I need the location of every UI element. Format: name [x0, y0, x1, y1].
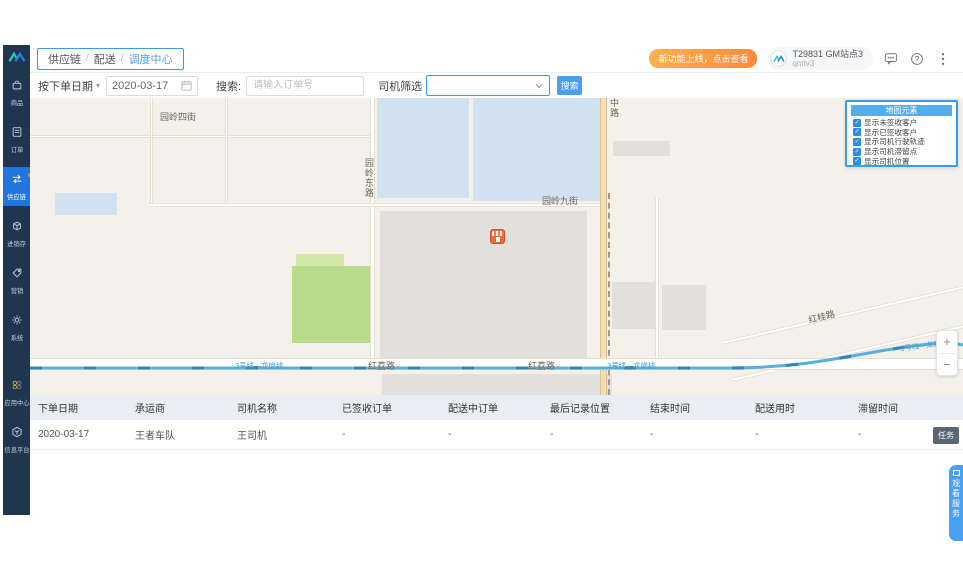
app-logo-icon	[8, 49, 26, 65]
map-zoom-control: + −	[936, 330, 958, 376]
cell-end-time: -	[642, 429, 747, 440]
cell-signed-orders: -	[334, 429, 440, 440]
street-label: 红桂路	[807, 307, 836, 326]
column-header: 最后记录位置	[542, 400, 642, 415]
service-ribbon[interactable]: 观看服务	[949, 465, 963, 541]
order-number-input[interactable]	[246, 76, 364, 96]
dispatch-center-page: 商品 订单 供应链 进销存 营销 系统 应用中心 信息平台	[0, 0, 963, 563]
street-label: 园岭四街	[160, 110, 196, 123]
street-label: 园岭东路	[363, 158, 376, 198]
store-marker-icon[interactable]	[490, 229, 505, 244]
column-header: 配送中订单	[440, 400, 542, 415]
service-ribbon-label: 观看服务	[951, 479, 962, 519]
search-label: 搜索:	[216, 78, 241, 94]
app-center-icon	[11, 378, 23, 396]
map-road	[370, 98, 375, 363]
sidebar-item-orders[interactable]: 订单	[3, 120, 30, 159]
cell-order-date: 2020-03-17	[30, 429, 127, 440]
sidebar-item-label: 系统	[10, 334, 23, 343]
date-value: 2020-03-17	[112, 80, 168, 92]
chevron-down-icon	[535, 83, 543, 89]
map-building-block	[662, 285, 706, 330]
sidebar-item-products[interactable]: 商品	[3, 73, 30, 112]
avatar	[770, 50, 787, 67]
breadcrumb-separator: /	[121, 53, 124, 64]
promo-badge[interactable]: 新功能上线，点击查看	[649, 49, 757, 68]
account-subname: qmtv3	[792, 59, 863, 68]
option-show-unsigned-customers[interactable]: 显示未签收客户	[847, 118, 956, 128]
street-label: 红荔路	[528, 359, 555, 372]
map-building-block	[377, 98, 469, 198]
driver-filter-label: 司机筛选	[378, 78, 422, 94]
option-show-driver-stay-points[interactable]: 显示司机滞留点	[847, 147, 956, 157]
column-header: 下单日期	[30, 400, 127, 415]
column-header: 已签收订单	[334, 400, 440, 415]
map-park-block	[292, 266, 375, 343]
top-bar: 供应链 / 配送 / 调度中心 新功能上线，点击查看 T29831 GM站点3 …	[30, 45, 963, 73]
sidebar-item-label: 应用中心	[4, 399, 29, 408]
top-right-cluster: 新功能上线，点击查看 T29831 GM站点3 qmtv3	[649, 47, 963, 70]
sidebar-item-label: 营销	[10, 287, 23, 296]
checkbox-checked-icon[interactable]	[853, 157, 861, 165]
map-building-block	[382, 374, 612, 395]
map-main-road	[600, 98, 607, 395]
map-building-block	[612, 282, 658, 329]
breadcrumb-root[interactable]: 供应链	[48, 51, 81, 67]
sidebar-item-info-platform[interactable]: 信息平台	[3, 420, 30, 459]
map-road-hongli	[30, 358, 963, 370]
zoom-out-button[interactable]: −	[937, 354, 957, 376]
date-type-label: 按下单日期	[38, 78, 93, 94]
map-building-block	[613, 141, 670, 156]
checkbox-checked-icon[interactable]	[853, 138, 861, 146]
table-row[interactable]: 2020-03-17 王者车队 王司机 - - - - - - 任务	[30, 420, 963, 450]
supply-chain-icon	[11, 172, 23, 190]
option-show-driver-location[interactable]: 显示司机位置	[847, 156, 956, 166]
account-name: T29831 GM站点3	[792, 49, 863, 59]
column-header: 滞留时间	[850, 400, 963, 415]
chevron-down-icon: ▾	[96, 81, 100, 90]
gear-icon	[11, 313, 23, 331]
sidebar-item-app-center[interactable]: 应用中心	[3, 373, 30, 412]
cell-delivering-orders: -	[440, 429, 542, 440]
column-header: 结束时间	[642, 400, 747, 415]
map-canvas[interactable]: 园岭四街 园岭东路 园岭九街 中路 红荔路 红荔路 红桂路 3号线—龙岗线 3号…	[30, 98, 963, 395]
driver-select[interactable]	[426, 75, 550, 96]
message-icon[interactable]	[883, 51, 899, 67]
map-building-block	[55, 193, 117, 215]
inventory-icon	[11, 219, 23, 237]
sidebar-item-label: 供应链	[7, 193, 26, 202]
option-label: 显示司机滞留点	[864, 146, 917, 156]
sidebar-item-system[interactable]: 系统	[3, 308, 30, 347]
breadcrumb-separator: /	[86, 53, 89, 64]
filter-bar: 按下单日期 ▾ 2020-03-17 搜索: 司机筛选 搜索	[30, 73, 963, 98]
task-button[interactable]: 任务	[933, 427, 959, 444]
map-road	[225, 98, 228, 203]
sidebar-item-supply-chain[interactable]: 供应链	[3, 167, 30, 206]
marketing-icon	[11, 266, 23, 284]
sidebar: 商品 订单 供应链 进销存 营销 系统 应用中心 信息平台	[3, 45, 30, 515]
sidebar-item-label: 商品	[10, 99, 23, 108]
metro-label: 3号线—龙岗线	[235, 360, 283, 370]
sidebar-item-inventory[interactable]: 进销存	[3, 214, 30, 253]
column-header: 司机名称	[229, 400, 334, 415]
sidebar-item-marketing[interactable]: 营销	[3, 261, 30, 300]
checkbox-checked-icon[interactable]	[853, 148, 861, 156]
sidebar-item-label: 信息平台	[4, 446, 29, 455]
cell-carrier: 王者车队	[127, 427, 229, 442]
zoom-in-button[interactable]: +	[937, 331, 957, 353]
column-header: 配送用时	[747, 400, 850, 415]
bag-icon	[11, 78, 23, 96]
column-header: 承运商	[127, 400, 229, 415]
cell-delivery-duration: -	[747, 429, 850, 440]
map-panel-title: 地图元素	[851, 105, 952, 116]
info-platform-icon	[11, 425, 23, 443]
order-icon	[11, 125, 23, 143]
map-building-block	[380, 211, 587, 361]
more-menu-icon[interactable]	[935, 51, 951, 67]
street-label: 园岭九街	[542, 194, 578, 207]
map-road	[655, 198, 659, 358]
checkbox-checked-icon[interactable]	[853, 119, 861, 127]
cell-last-location: -	[542, 429, 642, 440]
street-label: 中路	[608, 98, 621, 118]
account-menu[interactable]: T29831 GM站点3 qmtv3	[767, 47, 873, 70]
map-road	[150, 203, 610, 207]
street-label: 红荔路	[368, 359, 395, 372]
help-icon[interactable]	[909, 51, 925, 67]
metro-label: 3号线—龙岗线	[607, 360, 655, 370]
breadcrumb-section[interactable]: 配送	[94, 51, 116, 67]
sidebar-item-label: 进销存	[7, 240, 26, 249]
calendar-icon	[181, 80, 192, 91]
cell-driver-name: 王司机	[229, 427, 334, 442]
option-label: 显示司机位置	[864, 156, 910, 166]
map-road	[30, 135, 375, 138]
map-building-block	[473, 98, 601, 201]
map-road	[150, 98, 153, 203]
service-icon	[953, 470, 960, 476]
sidebar-item-label: 订单	[10, 146, 23, 155]
breadcrumb-current: 调度中心	[129, 51, 173, 67]
date-type-dropdown[interactable]: 按下单日期 ▾	[38, 78, 100, 94]
breadcrumb: 供应链 / 配送 / 调度中心	[37, 48, 184, 70]
search-button[interactable]: 搜索	[557, 76, 582, 95]
date-input[interactable]: 2020-03-17	[106, 76, 198, 96]
map-elements-panel: 地图元素 显示未签收客户 显示已签收客户 显示司机行驶轨迹 显示司机滞留点 显示…	[845, 100, 958, 167]
checkbox-checked-icon[interactable]	[853, 128, 861, 136]
table-header: 下单日期 承运商 司机名称 已签收订单 配送中订单 最后记录位置 结束时间 配送…	[30, 395, 963, 420]
